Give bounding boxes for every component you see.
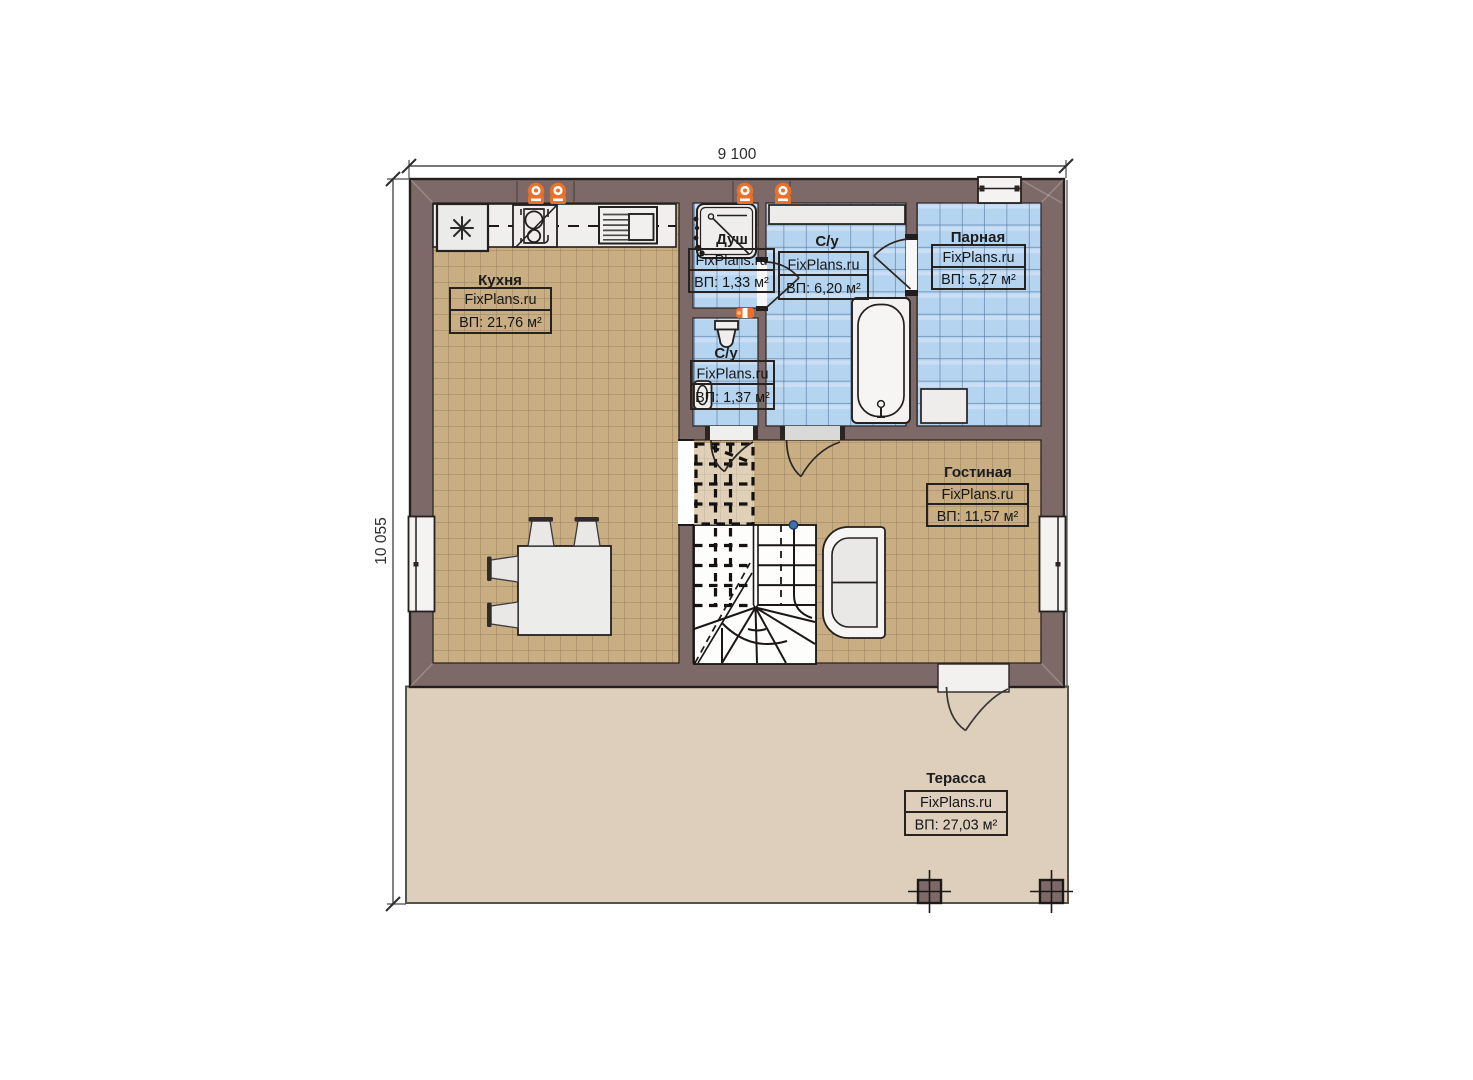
svg-text:ВП: 1,37 м²: ВП: 1,37 м² <box>695 390 770 406</box>
svg-text:ВП: 21,76 м²: ВП: 21,76 м² <box>459 315 542 331</box>
svg-text:Кухня: Кухня <box>478 272 522 289</box>
svg-text:С/у: С/у <box>714 345 738 362</box>
svg-text:FixPlans.ru: FixPlans.ru <box>943 250 1015 266</box>
svg-text:ВП: 27,03 м²: ВП: 27,03 м² <box>915 818 998 834</box>
svg-text:Парная: Парная <box>951 229 1005 246</box>
svg-text:Терасса: Терасса <box>926 770 986 787</box>
svg-text:FixPlans.ru: FixPlans.ru <box>465 292 537 308</box>
svg-text:FixPlans.ru: FixPlans.ru <box>920 795 992 811</box>
svg-text:Гостиная: Гостиная <box>944 464 1012 481</box>
svg-text:9 100: 9 100 <box>718 146 757 163</box>
svg-text:ВП: 6,20 м²: ВП: 6,20 м² <box>786 281 861 297</box>
svg-text:ВП: 5,27 м²: ВП: 5,27 м² <box>941 272 1016 288</box>
svg-text:10 055: 10 055 <box>373 517 390 564</box>
svg-text:FixPlans.ru: FixPlans.ru <box>788 258 860 274</box>
svg-text:ВП: 11,57 м²: ВП: 11,57 м² <box>937 509 1019 525</box>
svg-text:Душ: Душ <box>716 231 748 248</box>
svg-text:ВП: 1,33 м²: ВП: 1,33 м² <box>694 275 769 291</box>
svg-text:С/у: С/у <box>815 233 839 250</box>
svg-text:FixPlans.ru: FixPlans.ru <box>696 253 768 269</box>
svg-text:FixPlans.ru: FixPlans.ru <box>942 487 1014 503</box>
svg-text:FixPlans.ru: FixPlans.ru <box>697 367 769 383</box>
